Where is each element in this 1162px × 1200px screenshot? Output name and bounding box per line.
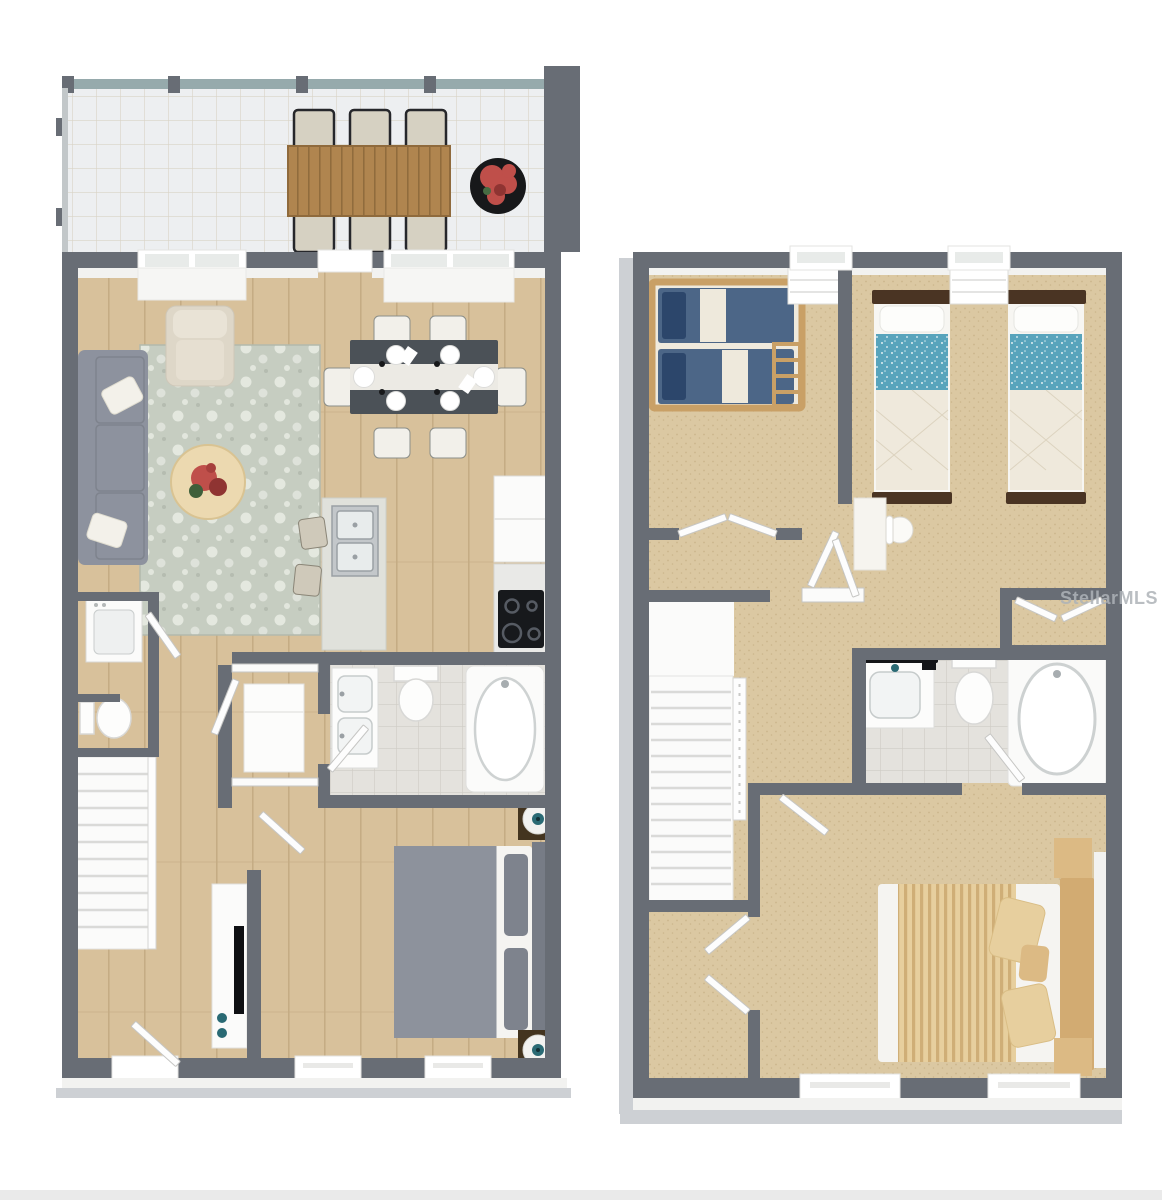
stair-railing [148,757,156,949]
round-coffee-table [171,445,245,519]
closet-wall [232,778,318,786]
bar-stool [298,516,328,549]
screened-patio [56,76,544,254]
toilet [952,652,996,724]
patio-door-opening [318,250,372,272]
tv [234,926,244,1014]
storage-closet [244,684,304,772]
staircase-second-floor [649,676,746,902]
stellar-mls-watermark: StellarMLS [1060,588,1158,608]
nightstand-bench [1054,838,1092,878]
twin-bed [1006,290,1086,504]
first-floor-foundation [56,1088,571,1098]
first-floor-wall-base [62,1078,567,1088]
bathtub [466,666,544,792]
bunk-bed [652,282,802,408]
nightstand-bench [1054,1038,1092,1076]
twin-bed [872,290,952,504]
pillow [1018,944,1050,983]
second-floor-foundation [620,1110,1122,1124]
staircase-first-floor [72,757,156,949]
potted-plant [470,158,526,214]
powder-room [80,698,131,738]
laundry-closet [86,600,142,662]
sofa [78,350,148,565]
bathtub [1008,652,1106,786]
patio-side-wall [544,66,580,252]
outdoor-dining-table [288,146,450,216]
bed-pillow [504,854,528,936]
double-sink [332,506,378,576]
double-sink-vanity [332,668,378,768]
screen-side-rail [62,88,68,254]
second-floor-plan [619,246,1122,1124]
stairwell-landing [649,602,734,676]
armchair [166,306,234,386]
toilet-tank [80,702,94,734]
cooktop [498,590,544,648]
vanity [858,650,938,728]
tv-console [212,884,247,1048]
bar-stool [293,564,322,597]
bunk-bedroom [652,282,802,408]
second-floor-wall-base [633,1098,1122,1110]
bathroom-second-floor [858,650,1106,786]
closet-wall [232,664,318,672]
screenshot-canvas: StellarMLS [0,0,1162,1200]
second-floor-side-extrusion [619,258,633,1114]
floor-plan-render: StellarMLS [0,0,1162,1200]
bed-pillow [504,948,528,1030]
bed [394,842,548,1042]
water-heater [244,684,304,772]
toilet [97,698,131,738]
bottom-bar [0,1191,1162,1200]
first-floor-plan [56,66,580,1098]
duvet [394,846,498,1038]
